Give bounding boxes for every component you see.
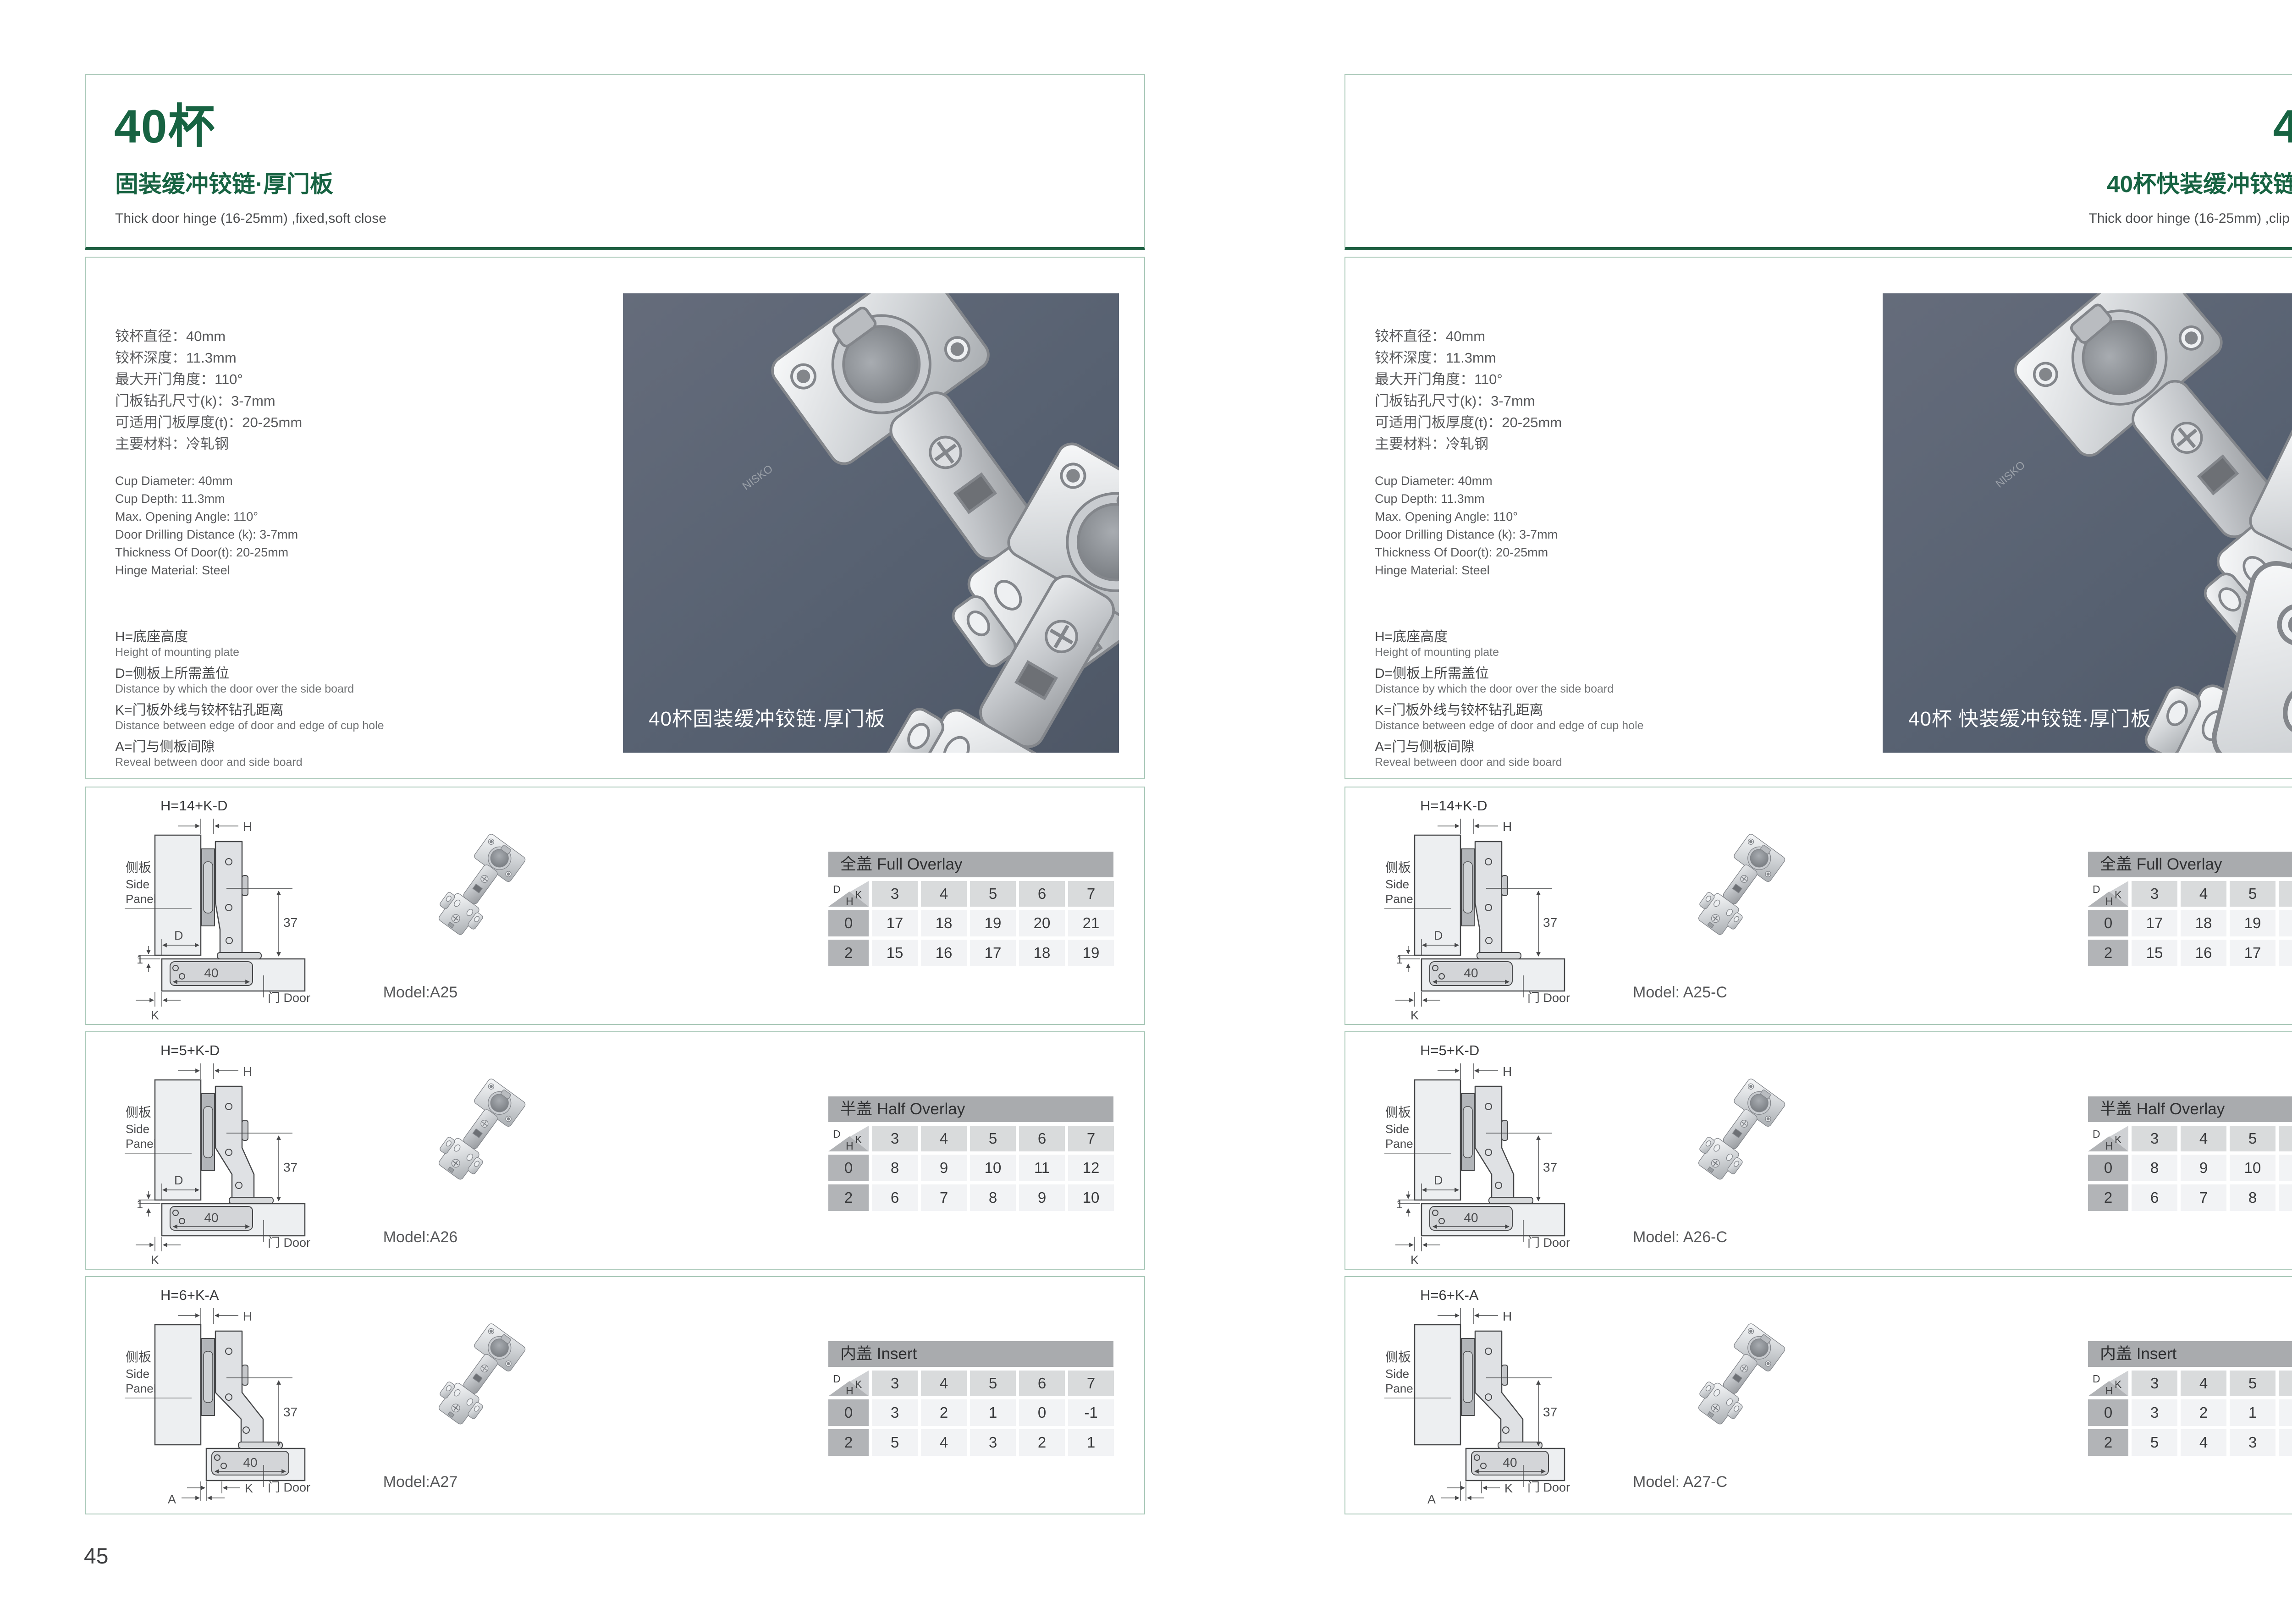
table-value: 1 [1068,1429,1114,1456]
svg-text:Side: Side [126,1122,149,1136]
hinge-thumbnail [342,1289,553,1472]
svg-text:H=14+K-D: H=14+K-D [160,798,227,814]
svg-text:Panel: Panel [126,892,156,906]
page-title: 40杯 [114,89,215,156]
spec-line-en: Thickness Of Door(t): 20-25mm [115,544,298,562]
svg-text:D: D [174,929,183,942]
hinge-table: DKH345670891011122678910 [828,1126,1113,1211]
definition-zh: A=门与侧板间隙 [115,739,596,755]
installation-diagram: H=14+K-DH侧板SidePanel3740门 DoorD1K [1366,793,1582,1022]
specs-chinese: 铰杯直径：40mm铰杯深度：11.3mm最大开门角度：110°门板钻孔尺寸(k)… [1375,325,1562,455]
left-title-box: 40杯 固装缓冲铰链·厚门板 Thick door hinge (16-25mm… [85,74,1145,250]
k-value-header: 5 [970,1126,1016,1151]
svg-text:37: 37 [283,915,298,930]
table-title: 内盖 Insert [2088,1341,2292,1367]
page-left: 40杯 固装缓冲铰链·厚门板 Thick door hinge (16-25mm… [85,74,1145,1514]
svg-text:Panel: Panel [1385,1137,1416,1151]
h-value-label: 0 [2088,1399,2128,1426]
table-value: 6 [2132,1184,2177,1211]
svg-text:1: 1 [1396,953,1403,966]
table-value: 9 [2279,1184,2292,1211]
table-value: 0 [1019,1399,1065,1426]
svg-text:37: 37 [1543,915,1557,930]
spec-line-zh: 铰杯深度：11.3mm [115,347,302,369]
svg-text:H: H [243,1309,252,1323]
table-value: 2 [921,1399,967,1426]
svg-text:侧板: 侧板 [126,1105,151,1119]
table-value: 11 [2279,1155,2292,1181]
svg-text:Side: Side [126,877,149,891]
model-label: Model: A26-C [1552,1228,1808,1246]
svg-text:Panel: Panel [1385,1382,1416,1395]
table-value: 8 [872,1155,918,1181]
spec-line-zh: 可适用门板厚度(t)：20-25mm [115,412,302,433]
hinge-table: DKH3456703210-1254321 [828,1371,1113,1456]
table-value: 19 [970,910,1016,936]
svg-text:K: K [855,1378,862,1390]
spec-line-zh: 铰杯直径：40mm [1375,325,1562,347]
k-value-header: 6 [1019,1126,1065,1151]
table-corner-cell: DKH [2088,881,2128,907]
brand-mark: NISKO [1994,459,2028,490]
svg-text:Side: Side [1385,877,1409,891]
hinge-illustration [431,1322,527,1430]
svg-text:H: H [1503,1064,1512,1079]
definition-en: Distance between edge of door and edge o… [115,719,596,732]
spec-line-en: Cup Depth: 11.3mm [1375,490,1558,508]
k-value-header: 3 [872,881,918,907]
k-value-header: 4 [921,1126,967,1151]
svg-text:H: H [2105,1385,2113,1396]
table-corner-cell: DKH [2088,1371,2128,1396]
hinge-table: DKH3456703210-1254321 [2088,1371,2292,1456]
svg-text:1: 1 [1396,1198,1403,1211]
definition-zh: H=底座高度 [1375,629,1856,645]
model-label: Model:A25 [292,984,549,1002]
overlay-table: 内盖 InsertDKH3456703210-1254321 [828,1341,1113,1456]
table-corner-cell: DKH [2088,1126,2128,1151]
page-number-left: 45 [84,1544,108,1569]
section-half-overlay: H=5+K-DH侧板SidePanel3740门 DoorD1K Model: … [1344,1031,2292,1270]
svg-text:Side: Side [126,1367,149,1381]
k-value-header: 3 [872,1126,918,1151]
table-value: 12 [1068,1155,1114,1181]
hinge-illustration [431,833,527,941]
page-subtitle: 40杯快装缓冲铰链·厚门板 [2107,165,2292,199]
overlay-table: 半盖 Half OverlayDKH345670891011122678910 [828,1096,1113,1211]
right-main-box: 铰杯直径：40mm铰杯深度：11.3mm最大开门角度：110°门板钻孔尺寸(k)… [1344,257,2292,779]
table-value: 11 [1019,1155,1065,1181]
definition-en: Height of mounting plate [115,645,596,659]
installation-diagram: H=5+K-DH侧板SidePanel3740门 DoorD1K [107,1038,322,1267]
k-value-header: 3 [2132,1371,2177,1396]
definition-zh: D=侧板上所需盖位 [1375,666,1856,682]
svg-text:D: D [2093,1373,2100,1385]
table-value: 3 [872,1399,918,1426]
page-right: 40杯 40杯快装缓冲铰链·厚门板 Thick door hinge (16-2… [1344,74,2292,1514]
svg-text:K: K [151,1253,159,1267]
svg-text:H=6+K-A: H=6+K-A [1420,1287,1479,1303]
svg-text:H: H [2105,1140,2113,1151]
spec-line-zh: 最大开门角度：110° [1375,369,1562,390]
svg-text:Panel: Panel [126,1137,156,1151]
svg-text:H: H [1503,820,1512,834]
h-value-label: 2 [828,1429,869,1456]
svg-text:H: H [243,1064,252,1079]
product-photo: NISKO 40杯固装缓冲铰链·厚门板 [623,293,1119,753]
hinge-thumbnail [1602,1044,1813,1228]
table-value: 7 [2181,1184,2226,1211]
table-value: 20 [1019,910,1065,936]
section-full-overlay: H=14+K-DH侧板SidePanel3740门 DoorD1K Model:… [85,787,1145,1025]
svg-text:K: K [2115,1378,2122,1390]
hinge-table: DKH345670171819202121516171819 [828,881,1113,966]
svg-text:40: 40 [1464,1211,1478,1225]
spec-line-en: Door Drilling Distance (k): 3-7mm [115,526,298,544]
k-value-header: 4 [921,881,967,907]
dimension-definitions: H=底座高度Height of mounting plateD=侧板上所需盖位D… [1375,622,1856,769]
svg-text:37: 37 [283,1405,298,1419]
model-label: Model:A26 [292,1228,549,1246]
hinge-table: DKH345670891011122678910 [2088,1126,2292,1211]
svg-text:H=14+K-D: H=14+K-D [1420,798,1487,814]
table-value: 3 [2132,1399,2177,1426]
svg-text:Side: Side [1385,1122,1409,1136]
table-value: 17 [872,910,918,936]
section-insert: H=6+K-AH侧板SidePanel3740门 DoorKA Model:A2… [85,1276,1145,1514]
photo-caption: 40杯固装缓冲铰链·厚门板 [649,702,886,732]
table-value: 18 [1019,940,1065,966]
table-corner-cell: DKH [828,881,869,907]
hinge-illustration [1691,1322,1786,1430]
table-value: 6 [872,1184,918,1211]
dimension-definitions: H=底座高度Height of mounting plateD=侧板上所需盖位D… [115,622,596,769]
table-title: 内盖 Insert [828,1341,1113,1367]
brand-mark: NISKO [740,462,775,493]
svg-text:K: K [1504,1481,1513,1495]
installation-diagram: H=14+K-DH侧板SidePanel3740门 DoorD1K [107,793,322,1022]
spec-line-en: Cup Diameter: 40mm [1375,472,1558,490]
definition-zh: H=底座高度 [115,629,596,645]
k-value-header: 6 [1019,881,1065,907]
product-photo: NISKO 40杯 快装缓冲铰链·厚门板 [1883,293,2292,753]
overlay-table: 半盖 Half OverlayDKH345670891011122678910 [2088,1096,2292,1211]
svg-text:H: H [846,1140,854,1151]
h-value-label: 2 [2088,940,2128,966]
page-tagline: Thick door hinge (16-25mm) ,fixed,soft c… [115,211,386,226]
svg-text:侧板: 侧板 [1385,1105,1411,1119]
table-value: 17 [2230,940,2275,966]
svg-text:1: 1 [137,953,143,966]
k-value-header: 4 [2181,881,2226,907]
table-value: 2 [2181,1399,2226,1426]
svg-text:D: D [1434,929,1443,942]
table-value: 8 [2132,1155,2177,1181]
h-value-label: 0 [828,1399,869,1426]
hinge-thumbnail [1602,799,1813,983]
section-insert: H=6+K-AH侧板SidePanel3740门 DoorKA Model: A… [1344,1276,2292,1514]
svg-text:37: 37 [1543,1160,1557,1174]
table-title: 半盖 Half Overlay [2088,1096,2292,1122]
svg-text:D: D [1434,1173,1443,1187]
svg-text:K: K [2115,889,2122,901]
h-value-label: 2 [2088,1184,2128,1211]
svg-text:K: K [1410,1253,1419,1267]
k-value-header: 7 [1068,1371,1114,1396]
k-value-header: 5 [2230,1371,2275,1396]
h-value-label: 2 [2088,1429,2128,1456]
table-value: 16 [921,940,967,966]
h-value-label: 2 [828,1184,869,1211]
svg-text:Side: Side [1385,1367,1409,1381]
h-value-label: 0 [2088,1155,2128,1181]
svg-text:D: D [2093,883,2100,895]
svg-text:侧板: 侧板 [1385,860,1411,875]
spec-line-zh: 铰杯深度：11.3mm [1375,347,1562,369]
svg-text:H: H [2105,895,2113,907]
svg-text:D: D [833,1373,841,1385]
spec-line-en: Cup Depth: 11.3mm [115,490,298,508]
svg-text:K: K [151,1008,159,1022]
svg-text:侧板: 侧板 [126,1350,151,1364]
svg-text:K: K [855,889,862,901]
k-value-header: 7 [1068,881,1114,907]
k-value-header: 4 [2181,1126,2226,1151]
table-value: -1 [1068,1399,1114,1426]
hinge-illustration [431,1078,527,1185]
table-value: 16 [2181,940,2226,966]
hinge-table: DKH345670171819202121516171819 [2088,881,2292,966]
svg-text:Panel: Panel [1385,892,1416,906]
table-title: 全盖 Full Overlay [828,852,1113,877]
section-full-overlay: H=14+K-DH侧板SidePanel3740门 DoorD1K Model:… [1344,787,2292,1025]
specs-chinese: 铰杯直径：40mm铰杯深度：11.3mm最大开门角度：110°门板钻孔尺寸(k)… [115,325,302,455]
hinge-thumbnail [342,799,553,983]
svg-text:D: D [174,1173,183,1187]
definition-en: Distance between edge of door and edge o… [1375,719,1856,732]
page-tagline: Thick door hinge (16-25mm) ,clip on ,sof… [2088,211,2292,226]
spec-line-en: Max. Opening Angle: 110° [115,508,298,526]
table-value: 2 [1019,1429,1065,1456]
svg-text:Panel: Panel [126,1382,156,1395]
specs-english: Cup Diameter: 40mmCup Depth: 11.3mmMax. … [1375,472,1558,579]
definition-en: Reveal between door and side board [115,755,596,769]
table-value: 3 [2230,1429,2275,1456]
spec-line-en: Cup Diameter: 40mm [115,472,298,490]
hinge-thumbnail [342,1044,553,1228]
h-value-label: 0 [2088,910,2128,936]
installation-diagram: H=5+K-DH侧板SidePanel3740门 DoorD1K [1366,1038,1582,1267]
hinge-photo-illustration: NISKO [623,293,1119,753]
table-value: 5 [872,1429,918,1456]
svg-text:D: D [2093,1128,2100,1140]
svg-text:侧板: 侧板 [1385,1350,1411,1364]
installation-diagram: H=6+K-AH侧板SidePanel3740门 DoorKA [1366,1283,1582,1512]
spec-line-zh: 主要材料：冷轧钢 [115,433,302,455]
spec-line-zh: 可适用门板厚度(t)：20-25mm [1375,412,1562,433]
h-value-label: 2 [828,940,869,966]
page-subtitle: 固装缓冲铰链·厚门板 [115,165,333,199]
svg-text:H=6+K-A: H=6+K-A [160,1287,219,1303]
photo-caption: 40杯 快装缓冲铰链·厚门板 [1908,702,2151,732]
k-value-header: 7 [1068,1126,1114,1151]
spec-line-en: Hinge Material: Steel [115,562,298,579]
table-title: 半盖 Half Overlay [828,1096,1113,1122]
definition-zh: D=侧板上所需盖位 [115,666,596,682]
table-value: 9 [1019,1184,1065,1211]
svg-text:37: 37 [283,1160,298,1174]
hinge-illustration [1691,833,1786,941]
svg-text:H: H [1503,1309,1512,1323]
table-value: 0 [2279,1399,2292,1426]
k-value-header: 4 [2181,1371,2226,1396]
k-value-header: 3 [2132,1126,2177,1151]
table-value: 17 [2132,910,2177,936]
spec-line-en: Door Drilling Distance (k): 3-7mm [1375,526,1558,544]
specs-english: Cup Diameter: 40mmCup Depth: 11.3mmMax. … [115,472,298,579]
right-title-box: 40杯 40杯快装缓冲铰链·厚门板 Thick door hinge (16-2… [1344,74,2292,250]
table-value: 1 [970,1399,1016,1426]
spec-line-zh: 门板钻孔尺寸(k)：3-7mm [115,390,302,412]
table-value: 18 [921,910,967,936]
definition-en: Reveal between door and side board [1375,755,1856,769]
table-value: 1 [2230,1399,2275,1426]
svg-text:H: H [243,820,252,834]
table-value: 7 [921,1184,967,1211]
k-value-header: 6 [1019,1371,1065,1396]
table-value: 5 [2132,1429,2177,1456]
spec-line-en: Max. Opening Angle: 110° [1375,508,1558,526]
svg-text:K: K [245,1481,253,1495]
hinge-thumbnail [1602,1289,1813,1472]
svg-text:K: K [2115,1134,2122,1145]
k-value-header: 5 [2230,1126,2275,1151]
table-value: 4 [921,1429,967,1456]
spec-line-en: Hinge Material: Steel [1375,562,1558,579]
table-value: 17 [970,940,1016,966]
svg-text:D: D [833,883,841,895]
spec-line-zh: 铰杯直径：40mm [115,325,302,347]
table-value: 15 [872,940,918,966]
table-value: 19 [2230,910,2275,936]
table-corner-cell: DKH [828,1126,869,1151]
k-value-header: 5 [970,881,1016,907]
k-value-header: 3 [872,1371,918,1396]
definition-en: Distance by which the door over the side… [115,682,596,696]
svg-text:40: 40 [204,1211,218,1225]
definition-en: Height of mounting plate [1375,645,1856,659]
spec-line-zh: 最大开门角度：110° [115,369,302,390]
installation-diagram: H=6+K-AH侧板SidePanel3740门 DoorKA [107,1283,322,1512]
model-label: Model:A27 [292,1473,549,1491]
definition-en: Distance by which the door over the side… [1375,682,1856,696]
table-value: 10 [970,1155,1016,1181]
svg-text:A: A [1427,1492,1436,1506]
model-label: Model: A27-C [1552,1473,1808,1491]
svg-text:K: K [855,1134,862,1145]
table-value: 4 [2181,1429,2226,1456]
table-value: 8 [970,1184,1016,1211]
table-value: 19 [1068,940,1114,966]
svg-text:侧板: 侧板 [126,860,151,875]
svg-text:H: H [846,1385,854,1396]
definition-zh: A=门与侧板间隙 [1375,739,1856,755]
k-value-header: 6 [2279,1371,2292,1396]
overlay-table: 全盖 Full OverlayDKH3456701718192021215161… [2088,852,2292,966]
svg-text:40: 40 [1464,966,1478,980]
table-title: 全盖 Full Overlay [2088,852,2292,877]
spec-line-zh: 主要材料：冷轧钢 [1375,433,1562,455]
table-value: 20 [2279,910,2292,936]
table-value: 10 [2230,1155,2275,1181]
k-value-header: 5 [2230,881,2275,907]
svg-text:40: 40 [1503,1455,1517,1470]
table-value: 10 [1068,1184,1114,1211]
svg-text:A: A [168,1492,176,1506]
k-value-header: 6 [2279,881,2292,907]
table-value: 9 [2181,1155,2226,1181]
definition-zh: K=门板外线与铰杯钻孔距离 [115,702,596,719]
table-value: 18 [2181,910,2226,936]
page-title: 40杯 [2273,89,2292,156]
k-value-header: 6 [2279,1126,2292,1151]
table-value: 21 [1068,910,1114,936]
spec-line-en: Thickness Of Door(t): 20-25mm [1375,544,1558,562]
svg-text:37: 37 [1543,1405,1557,1419]
h-value-label: 0 [828,910,869,936]
table-value: 15 [2132,940,2177,966]
spec-line-zh: 门板钻孔尺寸(k)：3-7mm [1375,390,1562,412]
k-value-header: 4 [921,1371,967,1396]
h-value-label: 0 [828,1155,869,1181]
svg-text:40: 40 [243,1455,257,1470]
table-value: 3 [970,1429,1016,1456]
definition-zh: K=门板外线与铰杯钻孔距离 [1375,702,1856,719]
table-value: 2 [2279,1429,2292,1456]
left-main-box: 铰杯直径：40mm铰杯深度：11.3mm最大开门角度：110°门板钻孔尺寸(k)… [85,257,1145,779]
hinge-illustration [1691,1078,1786,1185]
svg-text:H: H [846,895,854,907]
section-half-overlay: H=5+K-DH侧板SidePanel3740门 DoorD1K Model:A… [85,1031,1145,1270]
k-value-header: 5 [970,1371,1016,1396]
svg-text:D: D [833,1128,841,1140]
svg-text:H=5+K-D: H=5+K-D [1420,1042,1479,1058]
table-value: 18 [2279,940,2292,966]
overlay-table: 全盖 Full OverlayDKH3456701718192021215161… [828,852,1113,966]
svg-text:1: 1 [137,1198,143,1211]
svg-text:40: 40 [204,966,218,980]
overlay-table: 内盖 InsertDKH3456703210-1254321 [2088,1341,2292,1456]
table-value: 9 [921,1155,967,1181]
hinge-photo-illustration: NISKO [1883,293,2292,753]
svg-text:H=5+K-D: H=5+K-D [160,1042,220,1058]
table-corner-cell: DKH [828,1371,869,1396]
model-label: Model: A25-C [1552,984,1808,1002]
table-value: 8 [2230,1184,2275,1211]
k-value-header: 3 [2132,881,2177,907]
svg-text:K: K [1410,1008,1419,1022]
